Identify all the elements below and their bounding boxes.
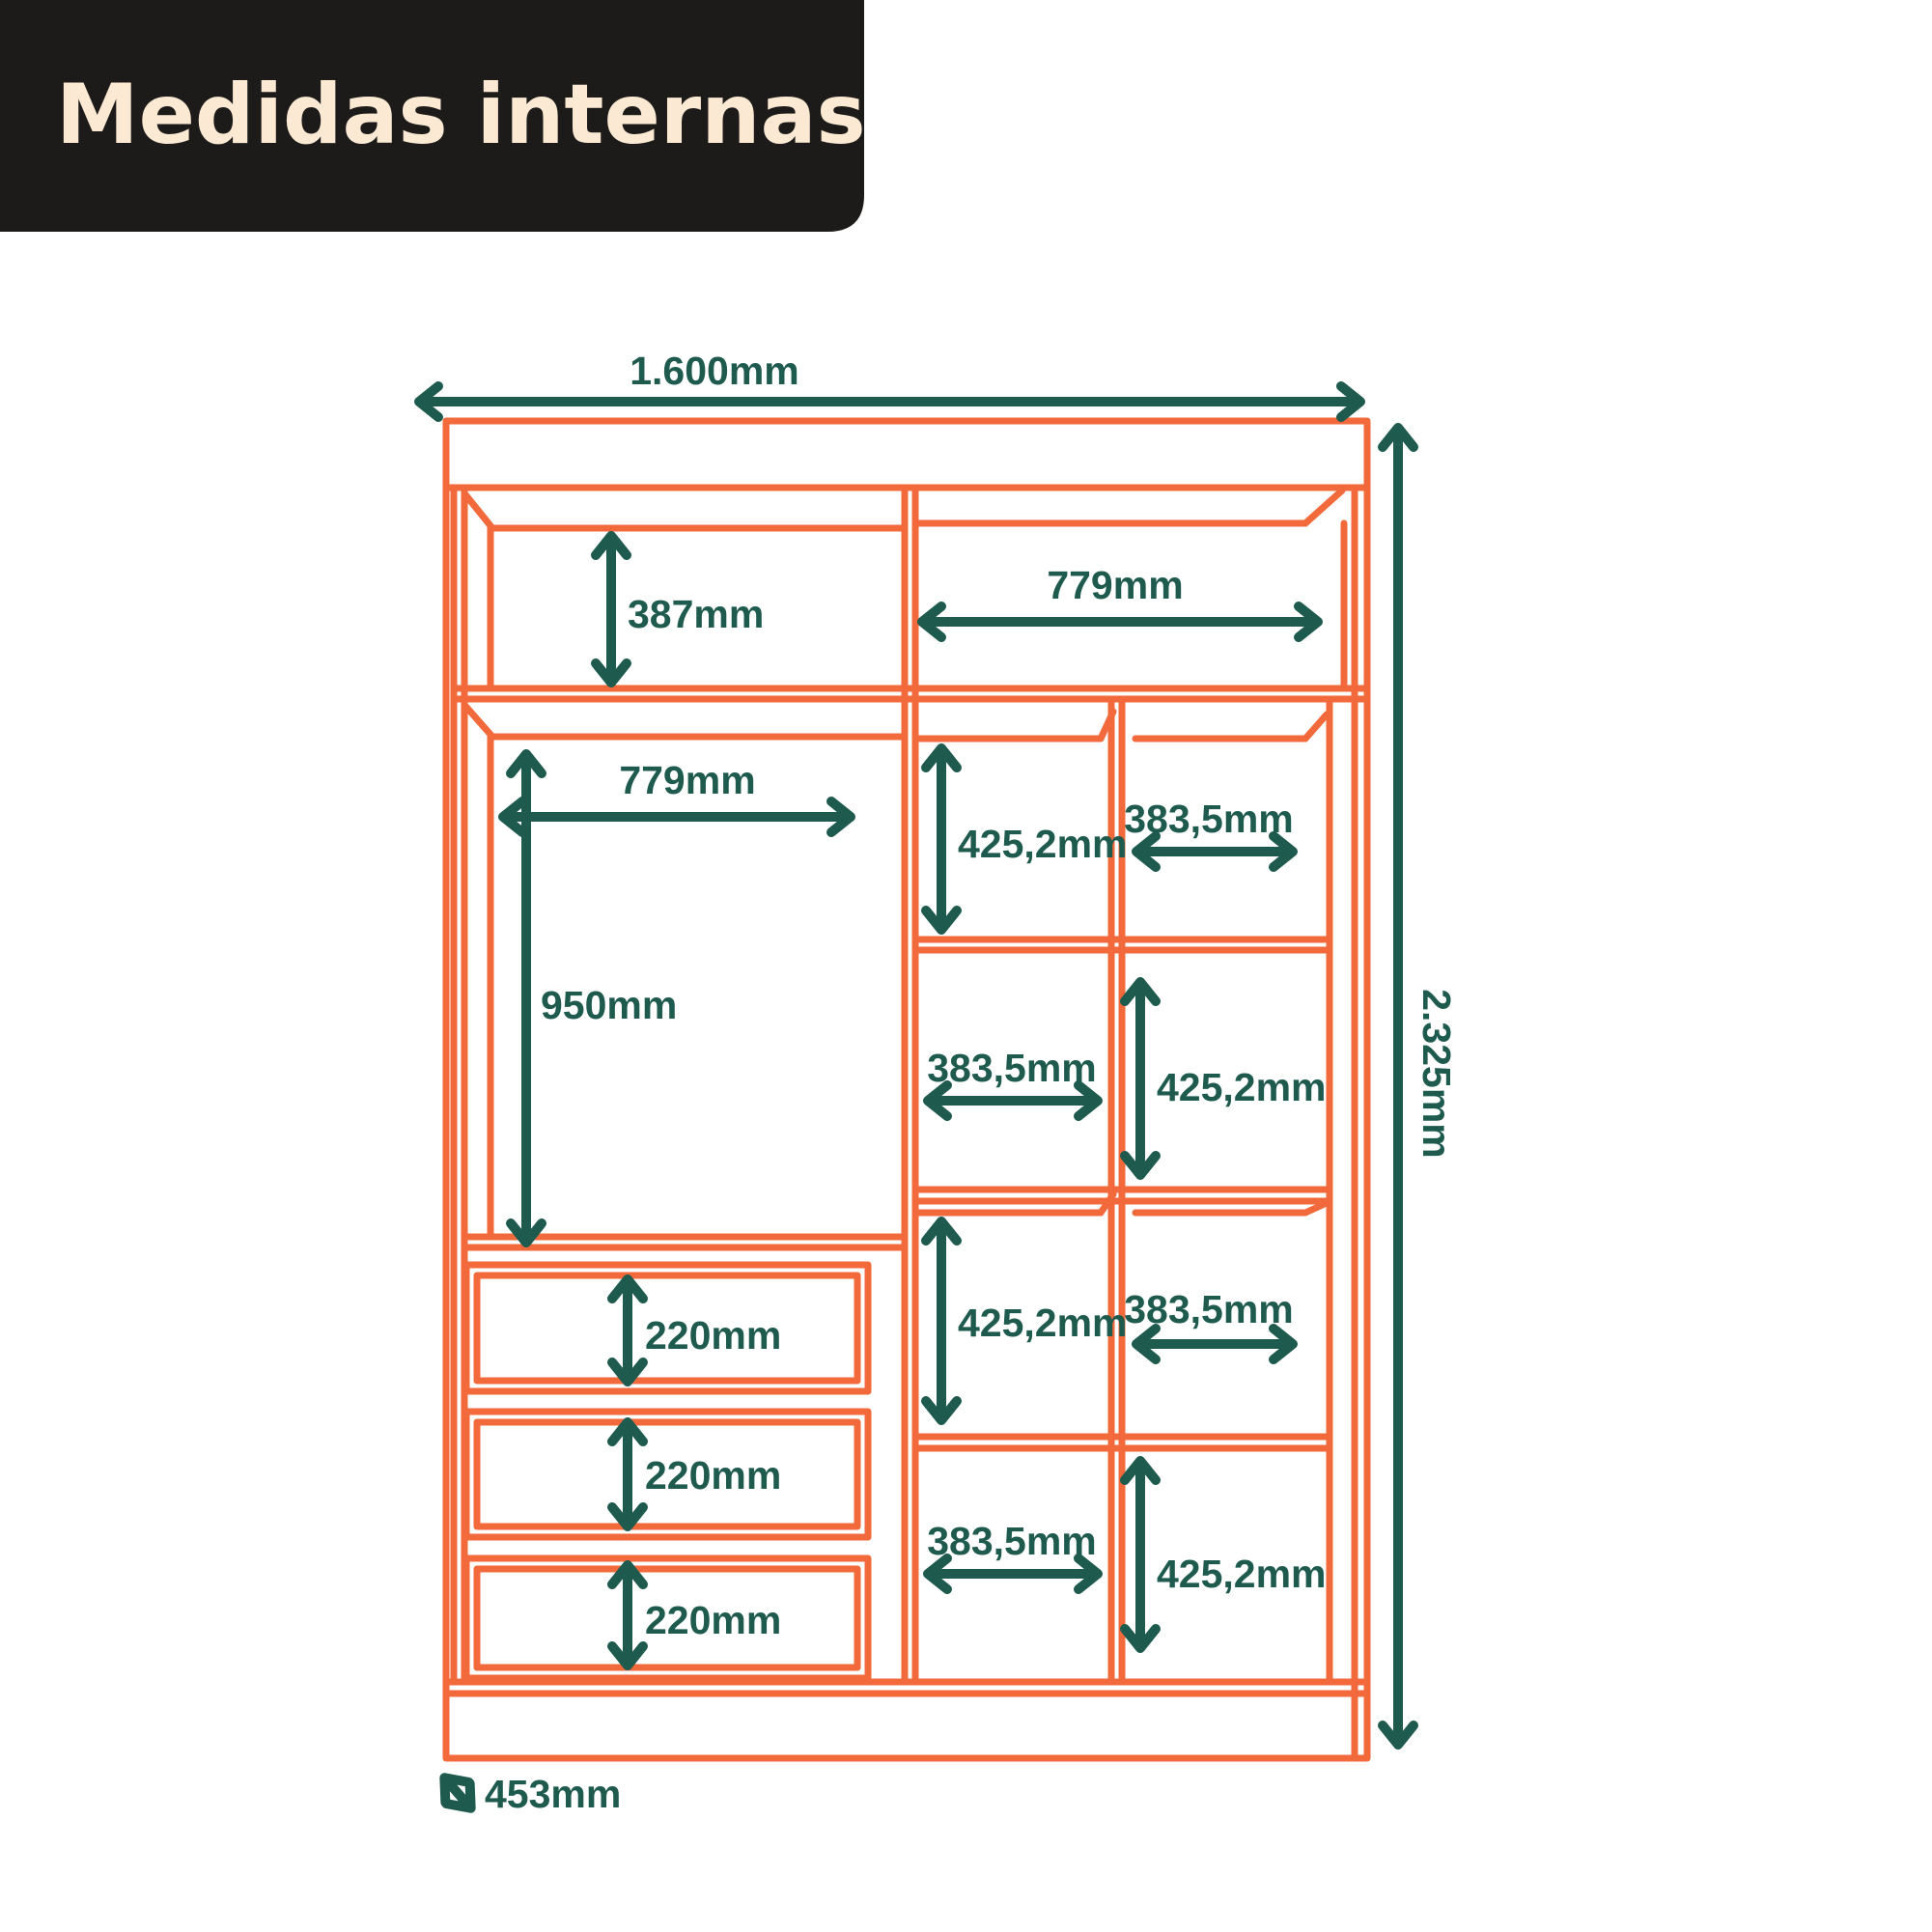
- dim-label-drawer-3: 220mm: [645, 1598, 781, 1642]
- dim-label-drawer-2: 220mm: [645, 1453, 781, 1498]
- dim-label-right-row4: 425,2mm: [1157, 1552, 1327, 1596]
- dim-label-mid-row2: 383,5mm: [927, 1046, 1097, 1090]
- diagram-canvas: Medidas internas: [0, 0, 1932, 1932]
- dim-label-right-row3: 383,5mm: [1124, 1287, 1294, 1331]
- header: Medidas internas: [0, 0, 866, 232]
- top-left-bevel: [464, 493, 492, 528]
- left-section-bevel: [464, 705, 492, 737]
- dim-label-section-width: 779mm: [619, 758, 755, 802]
- dim-label-top-right-shelf: 779mm: [1047, 563, 1183, 607]
- dim-label-top-left-shelf: 387mm: [628, 592, 764, 636]
- page-title: Medidas internas: [56, 67, 866, 163]
- dimensions: 1.600mm 2.325mm 387mm 779mm 779mm 950mm …: [420, 349, 1459, 1816]
- dim-label-drawer-1: 220mm: [645, 1313, 781, 1358]
- dim-label-depth: 453mm: [485, 1772, 621, 1816]
- top-right-bevel: [1305, 490, 1342, 523]
- dim-label-mid-row4: 383,5mm: [927, 1519, 1097, 1563]
- internal-measurements-infographic: Medidas internas: [0, 0, 1932, 1932]
- dim-arrow-depth: [445, 1778, 470, 1807]
- dim-label-section-height: 950mm: [541, 983, 677, 1027]
- right-row1-bevel: [1305, 714, 1327, 739]
- dim-label-right-row1: 383,5mm: [1124, 797, 1294, 841]
- dim-label-mid-row1: 425,2mm: [958, 822, 1128, 866]
- dim-label-total-height: 2.325mm: [1414, 989, 1459, 1159]
- dim-label-mid-row3: 425,2mm: [958, 1301, 1128, 1345]
- dim-label-total-width: 1.600mm: [630, 349, 799, 393]
- dim-label-right-row2: 425,2mm: [1157, 1065, 1327, 1109]
